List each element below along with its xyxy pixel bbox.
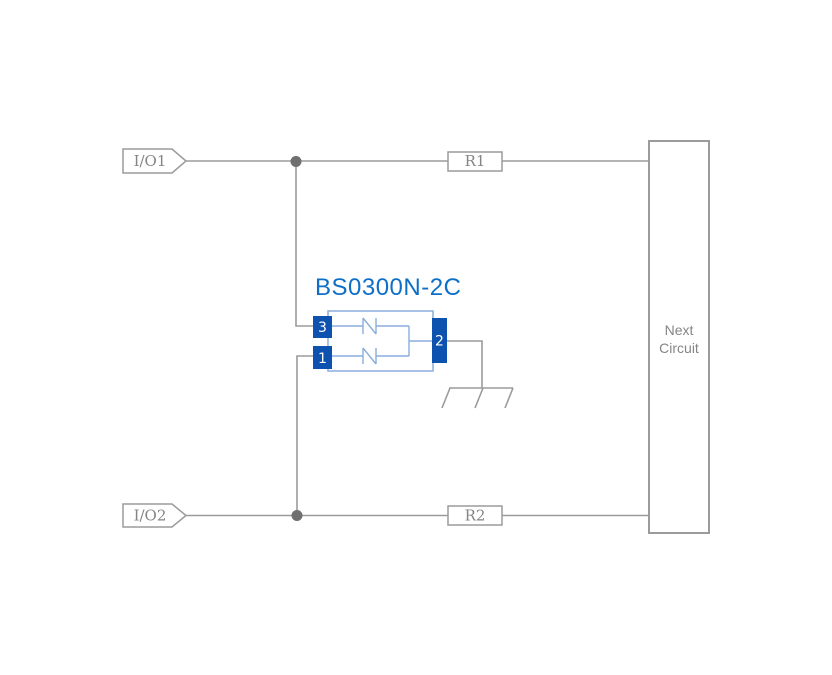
r2-label: R2 (465, 507, 486, 525)
io2-label: I/O2 (134, 507, 167, 525)
resistor-r2: R2 (448, 506, 502, 525)
wire-pin2-to-ground (447, 341, 482, 388)
pin-1-label: 1 (318, 351, 327, 367)
ground-hatch-3 (505, 388, 513, 408)
wire-top-junction-to-pin3 (296, 161, 313, 326)
pin-3: 3 (313, 316, 332, 338)
pin-2: 2 (432, 318, 447, 363)
next-circuit-label-line2: Circuit (659, 340, 699, 356)
io2-port: I/O2 (123, 504, 186, 527)
component-title: BS0300N-2C (315, 274, 461, 301)
resistor-r1: R1 (448, 152, 502, 171)
wire-bottom-junction-to-pin1 (297, 356, 313, 516)
junction-dot-top (291, 156, 302, 167)
ground-symbol-icon (442, 388, 513, 408)
circuit-schematic: I/O1 I/O2 R1 R2 Next Circuit BS0300N-2C (0, 0, 832, 675)
pin-3-label: 3 (318, 320, 327, 336)
r1-label: R1 (465, 152, 486, 170)
next-circuit-label-line1: Next (665, 322, 694, 338)
io1-port: I/O1 (123, 149, 186, 173)
tvs-component: BS0300N-2C 3 1 2 (313, 274, 461, 371)
junction-dot-bottom (292, 510, 303, 521)
io1-label: I/O1 (134, 152, 167, 170)
ground-hatch-2 (475, 388, 483, 408)
next-circuit-block: Next Circuit (649, 141, 709, 533)
schematic-canvas: I/O1 I/O2 R1 R2 Next Circuit BS0300N-2C (0, 0, 832, 675)
ground-hatch-1 (442, 388, 450, 408)
pin-1: 1 (313, 346, 332, 369)
pin-2-label: 2 (435, 334, 444, 350)
